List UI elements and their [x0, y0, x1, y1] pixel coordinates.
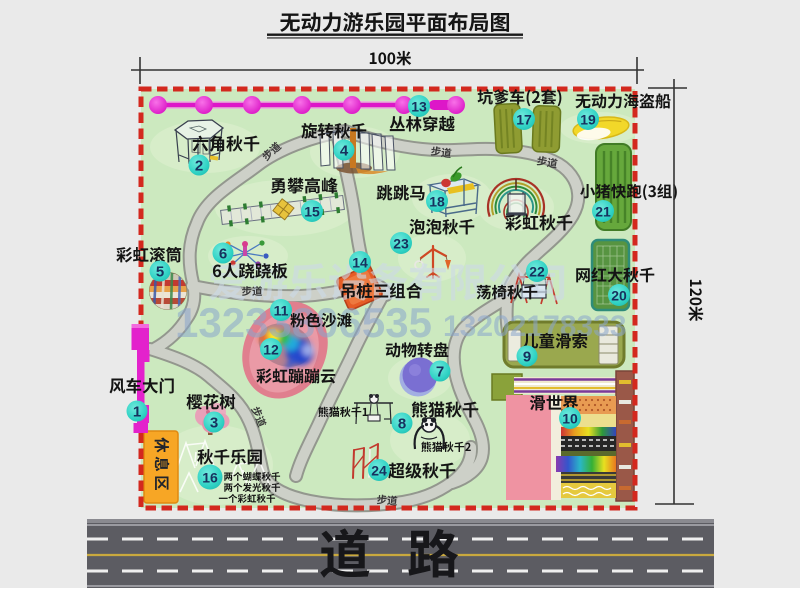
- svg-text:16: 16: [202, 470, 218, 486]
- svg-text:14: 14: [352, 255, 368, 271]
- svg-text:21: 21: [595, 204, 611, 220]
- svg-text:22: 22: [529, 264, 545, 280]
- svg-text:19: 19: [580, 112, 596, 128]
- svg-text:12: 12: [263, 342, 279, 358]
- svg-text:6: 6: [219, 246, 227, 263]
- svg-text:13202178333: 13202178333: [443, 310, 627, 343]
- svg-text:4: 4: [340, 143, 349, 160]
- svg-text:7: 7: [436, 364, 444, 381]
- svg-text:8: 8: [398, 416, 406, 433]
- svg-text:20: 20: [611, 288, 627, 304]
- svg-text:17: 17: [516, 112, 532, 128]
- svg-text:15: 15: [304, 204, 320, 220]
- svg-text:9: 9: [523, 349, 531, 366]
- svg-text:18: 18: [429, 194, 445, 210]
- svg-text:2: 2: [195, 158, 203, 175]
- svg-text:1: 1: [133, 404, 141, 421]
- svg-text:23: 23: [393, 236, 409, 252]
- svg-text:24: 24: [371, 463, 387, 479]
- svg-text:3: 3: [210, 415, 218, 432]
- svg-text:10: 10: [562, 411, 578, 427]
- svg-text:13: 13: [411, 99, 427, 115]
- svg-text:5: 5: [156, 264, 164, 281]
- svg-text:11: 11: [274, 303, 289, 319]
